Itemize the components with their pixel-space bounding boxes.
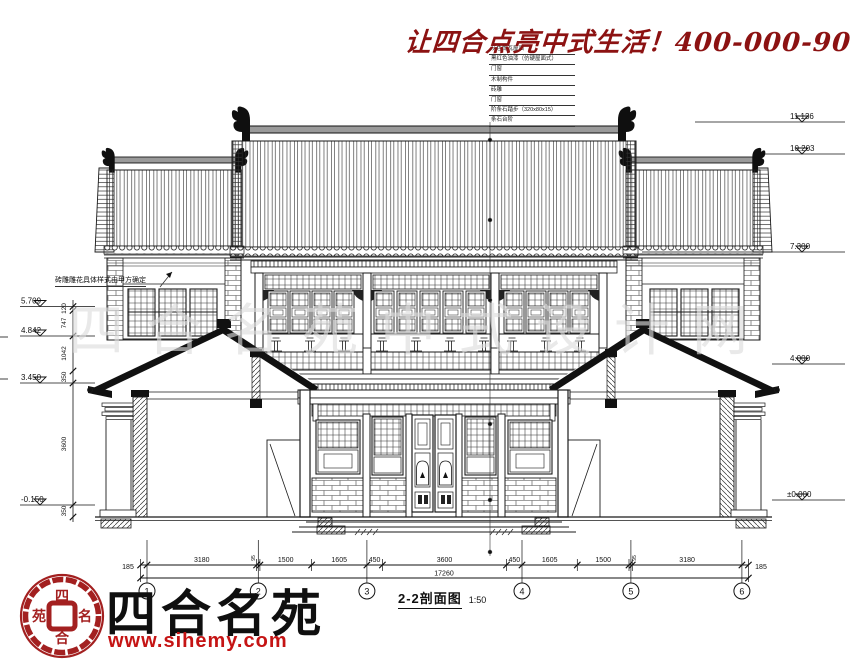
chain-dim: 3600 xyxy=(61,436,68,451)
right-section xyxy=(549,319,780,528)
level-value: 11.136 xyxy=(790,112,814,121)
level-value: 5.709 xyxy=(21,297,42,306)
ridge-ornament-left xyxy=(232,107,250,141)
right-wing xyxy=(619,148,772,340)
slogan-phone: 400-000-9075 xyxy=(674,28,850,58)
brick-carving-note: 砖雕雕花具体样式由甲方确定 xyxy=(55,275,146,287)
callout-row: 砖雕 xyxy=(489,86,575,96)
seal-char-bottom: 合 xyxy=(55,630,70,647)
dim-value: 3600 xyxy=(437,557,453,564)
dim-value: 1500 xyxy=(278,557,294,564)
dim-value: 1605 xyxy=(331,557,347,564)
level-markers-left: 120 747 1042 350 3600 350 5.709 4.842 3.… xyxy=(0,297,95,523)
level-value: 4.842 xyxy=(21,326,42,335)
left-wing xyxy=(95,148,248,340)
dim-value: 185 xyxy=(755,564,767,571)
dim-value: 450 xyxy=(508,557,520,564)
dim-value: 185 xyxy=(122,564,134,571)
callout-row: 条石台阶 xyxy=(489,116,575,126)
ridge-ornament-right xyxy=(618,107,636,141)
first-floor-facade xyxy=(298,390,570,517)
chain-dim: 1042 xyxy=(61,346,68,361)
main-roof xyxy=(230,107,638,260)
brand-website: www.sihemy.com xyxy=(108,630,288,653)
seal-char-right: 名 xyxy=(78,608,92,625)
chain-dim: 120 xyxy=(61,303,68,314)
dim-value: 1500 xyxy=(595,557,611,564)
drawing-title: 2-2剖面图1:50 xyxy=(398,588,486,608)
drawing-scale: 1:50 xyxy=(469,595,487,605)
ground-steps xyxy=(95,517,772,535)
marketing-slogan: 让四合点亮中式生活！400-000-9075 xyxy=(404,22,850,59)
callout-row: 门窗 xyxy=(489,96,575,106)
callout-row: 阶条石踏步（320x80x15） xyxy=(489,106,575,116)
dim-value: 95 xyxy=(632,555,638,561)
drawing-title-text: 2-2剖面图 xyxy=(398,591,462,609)
grid-label: 5 xyxy=(628,587,633,597)
chain-dim: 350 xyxy=(61,505,68,516)
second-floor-facade xyxy=(251,261,617,391)
architectural-drawing-page: 120 747 1042 350 3600 350 5.709 4.842 3.… xyxy=(0,0,850,660)
seal-char-left: 苑 xyxy=(31,609,46,625)
level-value: ±0.000 xyxy=(787,490,812,499)
seal-logo: 四 名 合 苑 xyxy=(21,575,103,657)
dim-value: 3180 xyxy=(679,557,695,564)
grid-label: 3 xyxy=(364,587,369,597)
grid-label: 4 xyxy=(519,587,524,597)
chain-dim: 350 xyxy=(61,371,68,382)
level-value: 10.203 xyxy=(790,144,815,153)
callout-row: 木制构件 xyxy=(489,76,575,86)
section-drawing-canvas: 120 747 1042 350 3600 350 5.709 4.842 3.… xyxy=(0,0,850,660)
grid-label: 6 xyxy=(739,587,744,597)
dim-value: 3180 xyxy=(194,557,210,564)
dim-value: 1605 xyxy=(542,557,558,564)
left-section xyxy=(88,319,319,528)
level-value: 3.450 xyxy=(21,373,42,382)
slogan-text: 让四合点亮中式生活！ xyxy=(404,28,676,58)
level-value: -0.150 xyxy=(21,495,44,504)
callout-row: 门窗 xyxy=(489,65,575,75)
dim-value: 95 xyxy=(251,555,257,561)
center-double-door xyxy=(412,415,456,512)
level-value: 7.300 xyxy=(790,242,811,251)
dim-total: 17260 xyxy=(434,571,454,578)
chain-dim: 747 xyxy=(61,317,68,328)
seal-char-top: 四 xyxy=(55,589,69,605)
level-value: 4.000 xyxy=(790,354,811,363)
dim-value: 450 xyxy=(369,557,381,564)
